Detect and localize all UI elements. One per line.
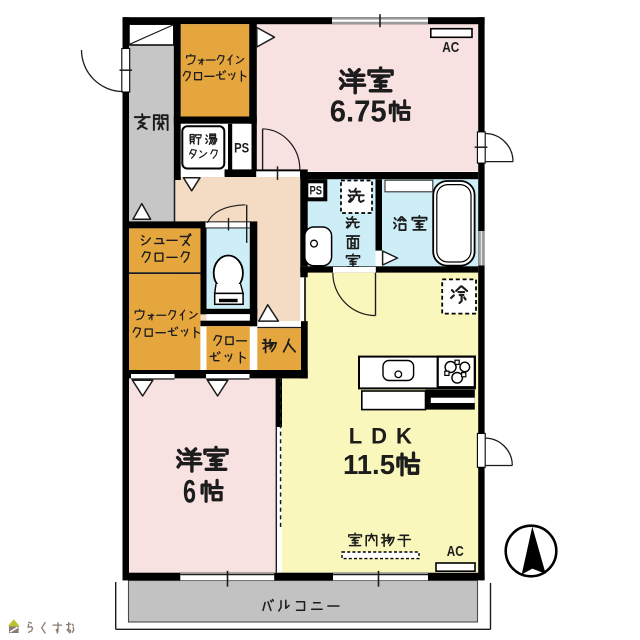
svg-text:AC: AC [447, 543, 464, 560]
svg-text:6.75: 6.75 [330, 93, 387, 128]
svg-text:PS: PS [234, 140, 249, 156]
svg-text:6: 6 [183, 474, 196, 510]
svg-text:PS: PS [310, 183, 323, 197]
svg-text:11.5: 11.5 [343, 449, 395, 480]
svg-text:AC: AC [442, 39, 459, 56]
svg-text:LDK: LDK [349, 423, 421, 448]
